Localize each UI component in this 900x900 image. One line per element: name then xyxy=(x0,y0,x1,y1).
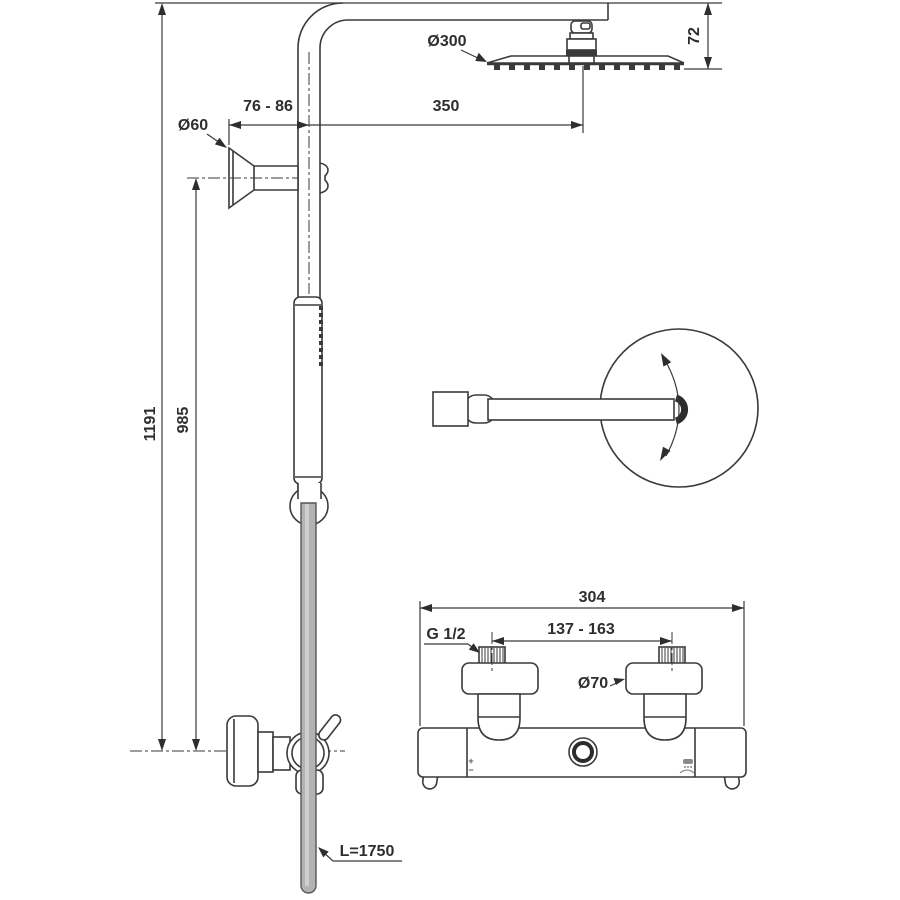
shower-hose xyxy=(301,503,316,893)
dimension-valve-width: 304 xyxy=(420,589,744,726)
head-drop-label: 72 xyxy=(686,27,703,45)
mixer-valve: + − xyxy=(418,647,746,790)
dimension-offset-and-arm: 76 - 86 350 xyxy=(229,66,583,145)
bracket-offset-label: 76 - 86 xyxy=(243,98,293,115)
dimension-handle-diameter: Ø70 xyxy=(578,675,625,692)
dimension-riser-height: 985 xyxy=(175,178,200,751)
spray-nozzles xyxy=(494,65,680,70)
hose-length-label: L=1750 xyxy=(340,843,395,860)
dimension-bracket-diameter: Ø60 xyxy=(178,117,227,148)
head-ball-joint xyxy=(566,21,597,63)
shower-system-drawing: + − 1191 985 76 - 86 350 Ø300 xyxy=(0,0,900,900)
dimension-total-height: 1191 xyxy=(142,3,166,751)
dimension-hose-length: L=1750 xyxy=(318,843,402,861)
total-height-label: 1191 xyxy=(142,407,159,442)
temperature-handle xyxy=(462,663,538,694)
bracket-diameter-label: Ø60 xyxy=(178,117,208,134)
technical-drawing-canvas: + − 1191 985 76 - 86 350 Ø300 xyxy=(0,0,900,900)
dimension-head-diameter: Ø300 xyxy=(427,33,487,62)
inlet-spacing-label: 137 - 163 xyxy=(547,621,615,638)
dimension-head-drop: 72 xyxy=(684,3,722,69)
valve-width-label: 304 xyxy=(579,589,606,606)
head-diameter-label: Ø300 xyxy=(427,33,466,50)
riser-height-label: 985 xyxy=(175,407,192,434)
handle-diameter-label: Ø70 xyxy=(578,675,608,692)
wall-bracket xyxy=(187,148,328,208)
dimension-inlet-thread: G 1/2 xyxy=(424,626,480,653)
flow-handle xyxy=(626,663,702,694)
hand-shower-wand xyxy=(294,297,323,484)
wand-nozzles xyxy=(319,306,323,366)
center-outlet xyxy=(569,738,597,766)
inlet-thread-label: G 1/2 xyxy=(426,626,465,643)
diverter-lever xyxy=(317,713,343,742)
arm-length-label: 350 xyxy=(433,98,460,115)
temp-minus-mark: − xyxy=(468,765,473,775)
swivel-arm-detail xyxy=(433,329,758,487)
